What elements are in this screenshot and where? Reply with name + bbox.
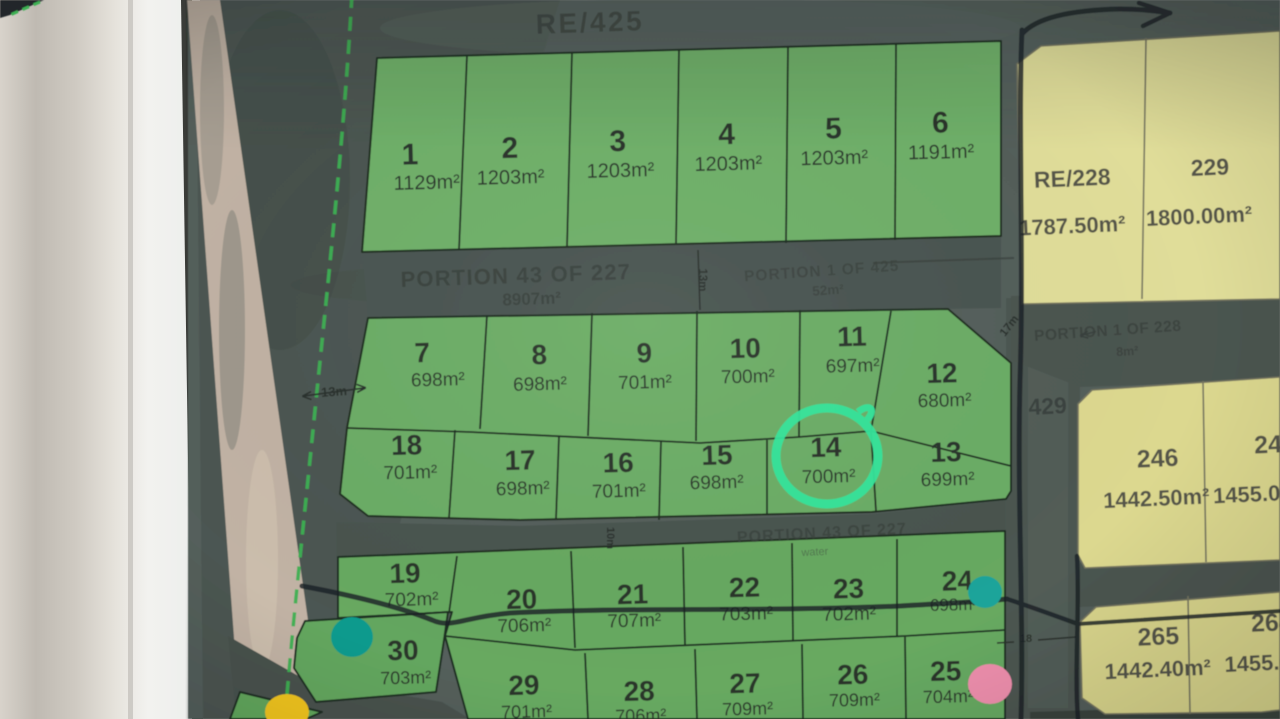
map-canvas: RE/425 PORTION 43 OF 227 8907m² PORTION … bbox=[0, 0, 1280, 719]
top-shade-overlay bbox=[186, 0, 1280, 150]
photo-of-subdivision-map: RE/425 PORTION 43 OF 227 8907m² PORTION … bbox=[0, 0, 1280, 719]
board-edge-shadow bbox=[128, 0, 133, 719]
wall bbox=[0, 0, 200, 719]
map-sheet: RE/425 PORTION 43 OF 227 8907m² PORTION … bbox=[0, 0, 1280, 719]
wall-and-board-edge bbox=[0, 0, 203, 719]
